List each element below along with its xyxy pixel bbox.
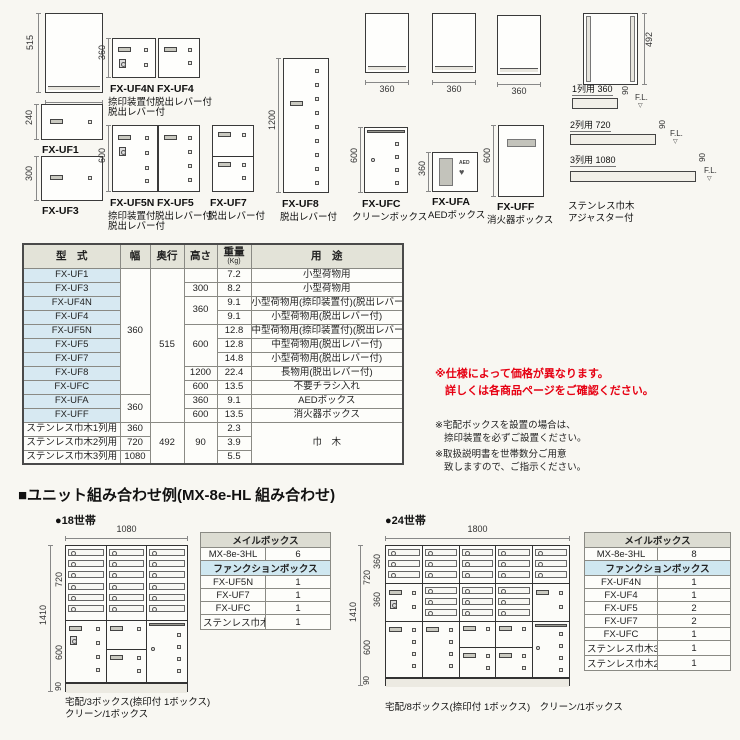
dim-mail-height: 720	[55, 572, 64, 587]
height-cell: 600	[184, 380, 217, 394]
mail-slot	[498, 571, 530, 578]
table-row: ステンレス巾木2列用1	[585, 656, 731, 671]
height-cell: 360	[184, 394, 217, 408]
model-label: FX-UF1	[42, 144, 79, 156]
vent-hole	[412, 628, 416, 632]
vent-hole	[486, 666, 490, 670]
function-box-header: ファンクションボックス	[201, 561, 331, 576]
weight-cell: 2.3	[217, 422, 251, 436]
dim-mail-height: 720	[363, 570, 372, 585]
vent-hole	[315, 153, 319, 157]
vent-hole	[315, 167, 319, 171]
parcel-box-fx-uf7	[496, 622, 533, 677]
clean-box-fx-ufc	[533, 622, 569, 677]
table-row: ファンクションボックス	[585, 561, 731, 576]
mail-column	[460, 584, 497, 621]
use-cell: 不要チラシ入れ	[251, 380, 403, 394]
part-qty: 8	[658, 548, 731, 561]
vent-hole	[559, 668, 563, 672]
mail-slot	[68, 594, 104, 601]
box-body	[212, 125, 254, 192]
vent-hole	[449, 628, 453, 632]
weight-unit: (Kg)	[218, 258, 251, 265]
vent-hole	[486, 654, 490, 658]
mail-slot	[462, 571, 494, 578]
box-body	[41, 156, 103, 201]
mail-column	[423, 546, 460, 583]
mail-slot	[425, 609, 457, 616]
dim-height: 600	[350, 148, 359, 163]
name-plate	[164, 47, 177, 52]
mail-slot	[498, 609, 530, 616]
mail-column	[496, 584, 532, 621]
table-row: ファンクションボックス	[201, 561, 331, 576]
model-cell: FX-UF5N	[23, 324, 120, 338]
height-cell: 90	[184, 422, 217, 464]
use-cell: 中型荷物用(捺印装置付)(脱出レバー付)	[251, 324, 403, 338]
clean-box-fx-ufc	[147, 621, 187, 682]
skirt-dim-label: 2列用 720	[570, 118, 611, 132]
part-name: FX-UF5N	[201, 576, 266, 589]
vent-hole	[137, 627, 141, 631]
part-qty: 1	[266, 589, 331, 602]
height-cell: 600	[184, 408, 217, 422]
model-cell: FX-UFF	[23, 408, 120, 422]
use-cell: AEDボックス	[251, 394, 403, 408]
vent-hole	[559, 591, 563, 595]
vent-hole	[242, 176, 246, 180]
part-name: FX-UF4	[585, 589, 658, 602]
cabinet-base	[48, 86, 100, 90]
mail-slot	[425, 587, 457, 594]
vent-hole	[486, 627, 490, 631]
dim-line	[385, 536, 570, 541]
part-qty: 1	[658, 576, 731, 589]
vent-hole	[559, 605, 563, 609]
part-qty: 2	[658, 615, 731, 628]
use-cell: 小型荷物用	[251, 268, 403, 282]
table-row: MX-8e-3HL6	[201, 548, 331, 561]
depth-cell: 515	[150, 268, 184, 422]
mail-slot	[149, 549, 185, 556]
dim-line	[358, 545, 363, 686]
dim-width: 1080	[65, 524, 188, 534]
compartment-divider	[460, 647, 496, 648]
mail-slot	[462, 609, 494, 616]
price-note-line2: 詳しくは各商品ページをご確認ください。	[435, 383, 654, 400]
table-row: FX-UFA3603609.1AEDボックス	[23, 394, 403, 408]
model-cell: FX-UF4N	[23, 296, 120, 310]
part-qty: 1	[266, 615, 331, 630]
mail-slot	[109, 549, 145, 556]
name-plate	[50, 119, 63, 124]
name-plate	[389, 590, 402, 595]
use-cell: 小型荷物用(脱出レバー付)	[251, 310, 403, 324]
use-cell: 小型荷物用	[251, 282, 403, 296]
compartment-divider	[213, 156, 253, 157]
width-cell: 360	[120, 422, 150, 436]
vent-hole	[145, 151, 149, 155]
parcel-box-fx-uf5	[386, 622, 423, 677]
vent-hole	[177, 645, 181, 649]
mailbox-header: メイルボックス	[201, 533, 331, 548]
combination-section-title: ■ユニット組み合わせ例(MX-8e-HL 組み合わせ)	[18, 484, 335, 505]
view-window	[507, 139, 536, 147]
depth-cell: 492	[150, 422, 184, 464]
weight-cell: 5.5	[217, 450, 251, 464]
vent-hole	[88, 120, 92, 124]
vent-hole	[412, 605, 416, 609]
table-row: FX-UFC1	[201, 602, 331, 615]
part-name: ステンレス巾木2列用	[585, 656, 658, 671]
price-note: ※仕様によって価格が異なります。 詳しくは各商品ページをご確認ください。	[435, 366, 654, 400]
model-cell: FX-UF4	[23, 310, 120, 324]
vent-hole	[188, 150, 192, 154]
price-note-line1: ※仕様によって価格が異なります。	[435, 366, 654, 383]
feature-label: 脱出レバー付	[155, 94, 212, 108]
name-plate	[536, 590, 549, 595]
mail-slot	[68, 571, 104, 578]
table-row: FX-UF5N1	[201, 576, 331, 589]
table-row: ステンレス巾木3列用1	[201, 615, 331, 630]
dim-height: 90	[622, 86, 630, 95]
height-cell	[184, 268, 217, 282]
skirting-base	[66, 683, 187, 693]
vent-hole	[315, 181, 319, 185]
vent-hole	[315, 69, 319, 73]
vent-hole	[145, 166, 149, 170]
height-cell: 360	[184, 296, 217, 324]
parcel-box-fx-uf5n	[66, 621, 107, 682]
box-body	[498, 125, 544, 197]
part-qty: 2	[658, 602, 731, 615]
vent-hole	[137, 656, 141, 660]
table-row: メイルボックス	[201, 533, 331, 548]
table-row: FX-UF5N60012.8中型荷物用(捺印装置付)(脱出レバー付)	[23, 324, 403, 338]
box-body	[158, 38, 200, 78]
mail-column	[533, 546, 569, 583]
spec-table: 型 式 幅 奥行 高さ 重量(Kg) 用 途 FX-UF13605157.2小型…	[22, 243, 404, 465]
name-plate	[499, 626, 512, 631]
table-row: FX-UF72	[585, 615, 731, 628]
col-header-use: 用 途	[251, 244, 403, 268]
dim-height: 492	[645, 32, 654, 47]
dim-line	[36, 13, 41, 93]
mail-slot	[425, 560, 457, 567]
dim-height: 360	[98, 45, 107, 60]
compartment-divider	[107, 649, 147, 650]
mail-slot	[109, 605, 145, 612]
type-label: AEDボックス	[428, 207, 485, 221]
mail-slot	[498, 549, 530, 556]
parcel-section	[386, 622, 569, 678]
vent-hole	[188, 61, 192, 65]
box-body	[158, 125, 200, 192]
name-plate	[290, 101, 303, 106]
mail-slot	[68, 560, 104, 567]
model-cell: FX-UF7	[23, 352, 120, 366]
height-cell: 300	[184, 282, 217, 296]
dim-height: 300	[25, 166, 34, 181]
dim-base-height: 90	[55, 682, 63, 691]
combo24-caption: 宅配/8ボックス(捺印付 1ボックス) クリーン/1ボックス	[385, 702, 623, 714]
mail-section-lower	[386, 584, 569, 622]
use-cell: 長物用(脱出レバー付)	[251, 366, 403, 380]
vent-hole	[145, 179, 149, 183]
mail-slot	[109, 560, 145, 567]
table-row: FX-UF33008.2小型荷物用	[23, 282, 403, 296]
skirt-bar	[570, 171, 696, 182]
mail-slot	[462, 549, 494, 556]
width-cell: 360	[120, 394, 150, 422]
dim-total-height: 1410	[349, 602, 358, 622]
name-plate	[118, 135, 131, 140]
weight-cell: 8.2	[217, 282, 251, 296]
col-header-model: 型 式	[23, 244, 120, 268]
name-plate	[110, 655, 123, 660]
keyhole	[151, 647, 155, 651]
vent-hole	[96, 655, 100, 659]
insert-slot	[367, 130, 405, 133]
table-row: FX-UF4N3609.1小型荷物用(捺印装置付)(脱出レバー付)	[23, 296, 403, 310]
dim-width: 360	[365, 84, 409, 94]
cabinet-body	[365, 13, 409, 73]
weight-cell: 7.2	[217, 268, 251, 282]
mail-slot	[388, 549, 420, 556]
note-line: ※宅配ボックスを設置の場合は、	[435, 420, 587, 433]
keyhole	[371, 158, 375, 162]
box-body	[112, 38, 156, 78]
vent-hole	[188, 48, 192, 52]
floor-level-label: F.L.	[635, 93, 648, 102]
parcel-box-fx-uf7	[107, 621, 148, 682]
weight-cell: 22.4	[217, 366, 251, 380]
cabinet-body	[45, 13, 103, 93]
mail-column	[386, 546, 423, 583]
box-body	[364, 127, 408, 193]
weight-cell: 12.8	[217, 324, 251, 338]
table-row: MX-8e-3HL8	[585, 548, 731, 561]
vent-hole	[96, 627, 100, 631]
use-cell: 小型荷物用(捺印装置付)(脱出レバー付)	[251, 296, 403, 310]
box-body: AED ♥	[432, 152, 478, 192]
cabinet-body	[432, 13, 476, 73]
mail-slot	[425, 598, 457, 605]
insert-slot	[149, 623, 185, 626]
part-qty: 1	[658, 589, 731, 602]
name-plate	[118, 47, 131, 52]
mail-slot	[462, 560, 494, 567]
width-cell: 720	[120, 436, 150, 450]
type-label: クリーンボックス	[352, 209, 427, 223]
model-label: FX-UF3	[42, 205, 79, 217]
name-plate	[218, 162, 231, 167]
mail-slot	[535, 560, 567, 567]
vent-hole	[412, 664, 416, 668]
aed-text: AED	[459, 160, 470, 166]
feature-label: 脱出レバー付	[280, 209, 337, 223]
vent-hole	[96, 641, 100, 645]
mail-slot	[388, 571, 420, 578]
note-line: ※取扱説明書を世帯数分ご用意	[435, 449, 587, 462]
model-cell: FX-UFA	[23, 394, 120, 408]
col-header-height: 高さ	[184, 244, 217, 268]
mail-slot	[462, 587, 494, 594]
dim-base-height: 90	[363, 676, 371, 685]
model-cell: ステンレス巾木1列用	[23, 422, 120, 436]
floor-level-mark: ▽	[638, 102, 643, 109]
mail-slot	[109, 583, 145, 590]
vent-hole	[559, 632, 563, 636]
part-name: MX-8e-3HL	[201, 548, 266, 561]
vent-hole	[412, 640, 416, 644]
setup-notes: ※宅配ボックスを設置の場合は、 捺印装置を必ずご設置ください。 ※取扱説明書を世…	[435, 420, 587, 474]
table-row: FX-UF71	[201, 589, 331, 602]
table-row: FX-UF8120022.4長物用(脱出レバー付)	[23, 366, 403, 380]
name-plate	[463, 653, 476, 658]
cabinet-base	[368, 66, 406, 70]
weight-cell: 12.8	[217, 338, 251, 352]
frame-rail	[586, 16, 591, 82]
vent-hole	[395, 142, 399, 146]
weight-cell: 13.5	[217, 380, 251, 394]
col-header-weight: 重量(Kg)	[217, 244, 251, 268]
frame-rail	[630, 16, 635, 82]
mail-slot	[68, 605, 104, 612]
model-cell: ステンレス巾木2列用	[23, 436, 120, 450]
name-plate	[69, 626, 82, 631]
mail-column	[423, 584, 460, 621]
model-cell: FX-UFC	[23, 380, 120, 394]
vent-hole	[177, 669, 181, 673]
weight-cell: 9.1	[217, 310, 251, 324]
dim-line	[34, 104, 39, 140]
weight-cell: 3.9	[217, 436, 251, 450]
vent-hole	[137, 669, 141, 673]
name-plate	[463, 626, 476, 631]
mail-slot	[149, 560, 185, 567]
vent-hole	[395, 155, 399, 159]
dim-line	[642, 13, 647, 85]
vent-hole	[559, 656, 563, 660]
mail-slot	[109, 571, 145, 578]
vent-hole	[449, 640, 453, 644]
model-cell: FX-UF5	[23, 338, 120, 352]
mail-section	[66, 546, 187, 621]
skirt-dim-label: 1列用 360	[572, 82, 613, 96]
table-row: FX-UF13605157.2小型荷物用	[23, 268, 403, 282]
part-name: ステンレス巾木3列用	[201, 615, 266, 630]
dim-height: 90	[659, 120, 667, 129]
name-plate	[50, 175, 63, 180]
mail-slot	[68, 583, 104, 590]
cabinet-body	[497, 15, 541, 75]
spec-header-row: 型 式 幅 奥行 高さ 重量(Kg) 用 途	[23, 244, 403, 268]
mail-column	[107, 546, 148, 620]
note-line: 致しますので、ご指示ください。	[435, 462, 587, 475]
dim-width: 1800	[385, 524, 570, 534]
box-body	[41, 104, 103, 140]
floor-level-label: F.L.	[704, 166, 717, 175]
width-cell: 360	[120, 268, 150, 394]
mail-slot	[535, 549, 567, 556]
stamp-device	[70, 636, 77, 645]
mail-slot	[68, 549, 104, 556]
vent-hole	[395, 181, 399, 185]
skirt-bar	[572, 98, 618, 109]
dim-height: 600	[483, 148, 492, 163]
part-name: FX-UF7	[585, 615, 658, 628]
mail-section-upper	[386, 546, 569, 584]
parcel-section	[66, 621, 187, 683]
vent-hole	[395, 168, 399, 172]
dim-height: 1200	[268, 110, 277, 130]
vent-hole	[177, 633, 181, 637]
part-qty: 1	[266, 602, 331, 615]
feature-label: 脱出レバー付	[208, 208, 265, 222]
model-cell: FX-UF3	[23, 282, 120, 296]
name-plate	[389, 627, 402, 632]
part-name: ステンレス巾木3列用	[585, 641, 658, 656]
combo24-parts-table: メイルボックス MX-8e-3HL8 ファンクションボックス FX-UF4N1 …	[584, 532, 731, 671]
table-row: FX-UF52	[585, 602, 731, 615]
vent-hole	[315, 111, 319, 115]
floor-level-mark: ▽	[673, 138, 678, 145]
dim-mail-sub2: 360	[373, 592, 382, 607]
part-qty: 1	[658, 656, 731, 671]
function-box-header: ファンクションボックス	[585, 561, 731, 576]
vent-hole	[188, 136, 192, 140]
parcel-box-fx-uf5	[423, 622, 460, 677]
vent-hole	[242, 133, 246, 137]
vent-hole	[177, 657, 181, 661]
part-name: FX-UF7	[201, 589, 266, 602]
keyhole	[536, 646, 540, 650]
dim-total-height: 1410	[39, 605, 48, 625]
vent-hole	[188, 178, 192, 182]
dim-line	[34, 156, 39, 201]
name-plate	[110, 626, 123, 631]
use-cell: 中型荷物用(脱出レバー付)	[251, 338, 403, 352]
aed-window	[439, 158, 453, 186]
mail-slot	[462, 598, 494, 605]
table-row: ステンレス巾木3列用1	[585, 641, 731, 656]
vent-hole	[315, 83, 319, 87]
frame-body	[583, 13, 638, 85]
part-qty: 6	[266, 548, 331, 561]
type-label: 消火器ボックス	[487, 212, 553, 226]
mail-slot	[535, 571, 567, 578]
weight-cell: 13.5	[217, 408, 251, 422]
weight-cell: 14.8	[217, 352, 251, 366]
dim-parcel-height: 600	[55, 645, 64, 660]
parcel-box-fx-uf7	[460, 622, 497, 677]
skirting-name-line2: アジャスター付	[568, 210, 634, 224]
height-cell: 600	[184, 324, 217, 366]
vent-hole	[144, 48, 148, 52]
skirt-dim-label: 3列用 1080	[570, 153, 616, 167]
cabinet-base	[500, 68, 538, 72]
vent-hole	[145, 136, 149, 140]
vent-hole	[315, 139, 319, 143]
dim-height: 240	[25, 110, 34, 125]
col-header-width: 幅	[120, 244, 150, 268]
combo18-unit	[65, 545, 188, 692]
use-cell: 巾 木	[251, 422, 403, 464]
mail-slot	[149, 571, 185, 578]
box-body	[112, 125, 158, 192]
vent-hole	[96, 668, 100, 672]
